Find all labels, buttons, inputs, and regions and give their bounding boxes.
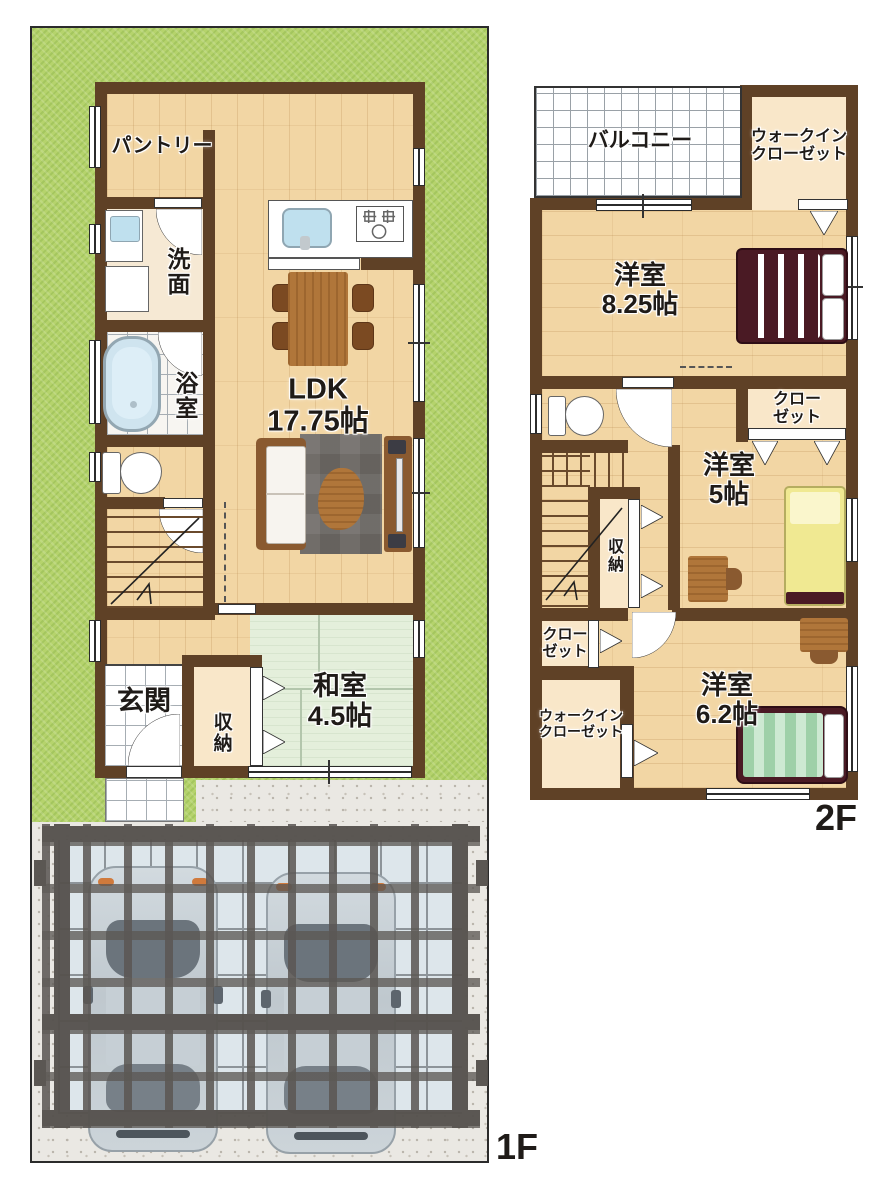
bedroom62-door-arc-icon [632,612,676,658]
washitsu-sliding-door [218,604,256,614]
closet5-shelf [748,428,846,440]
hall-door [163,498,203,508]
wall [736,389,748,442]
desk [800,618,848,652]
window [413,148,425,186]
door-arrow-icon [641,505,663,529]
bumper [116,1130,190,1138]
entrance-step-line [105,664,184,666]
kitchen-wall-stub [361,256,425,270]
bedroom5-door-arc-icon [616,389,672,447]
window [89,224,101,254]
f2-storage-door-track [628,499,640,608]
wall [530,376,858,389]
door-arrow-icon [634,740,658,766]
washroom-door [154,198,202,208]
desk-chair [810,650,838,664]
room-label-washitsu: 和室 4.5帖 [308,671,373,731]
window [413,620,425,658]
room-label-pantry: パントリー [112,135,213,157]
carport-post [476,860,488,886]
floor-plan-canvas: パントリー 洗面 浴室 LDK 17.75帖 玄関 収納 和室 4.5帖 [0,0,895,1200]
pillow [824,714,844,778]
tatami-line [300,690,302,766]
room-label-storage-f1: 収納 [210,712,231,754]
toilet-icon [102,450,162,494]
washbasin-bowl [110,216,140,242]
floor-label-2f: 2F [815,798,857,838]
door-arrow-icon [600,629,622,653]
dining-chair [352,322,374,350]
double-bed [736,248,848,344]
speaker-icon [388,440,406,454]
porch-tile [105,778,184,822]
approach-concrete [196,780,487,824]
closet62-door [588,620,599,668]
window-tick [328,760,330,784]
counter-lip [268,258,360,270]
door-arrow-icon [814,441,840,465]
single-bed-yellow [784,486,846,606]
tv-icon [396,458,403,532]
wall [95,608,215,620]
sofa-seam [266,493,304,495]
room-label-closet62: クロー ゼット [542,627,587,661]
window [89,106,101,168]
room-label-balcony: バルコニー [588,129,693,153]
speaker-icon [388,534,406,548]
sofa-cushions [266,446,306,544]
dining-table [288,272,348,366]
entrance-door-arc-icon [128,714,180,766]
door-arrow-icon [752,441,778,465]
wall [668,445,680,610]
window-tick [408,342,430,344]
pillow [822,298,844,340]
door-arrow-icon [810,211,838,235]
wall [542,666,634,680]
room-label-bedroom5: 洋室 5帖 [703,451,755,509]
wall [542,608,628,621]
wall [203,209,215,608]
bumper [294,1132,368,1140]
stairs-direction-line [107,514,203,608]
dining-chair [352,284,374,312]
window [89,452,101,482]
entrance-door [126,766,182,778]
desk-chair [726,568,742,590]
area-boundary-dashed [680,366,732,368]
window [706,788,810,800]
window-tick [642,194,644,218]
room-label-wic-bottom: ウォークイン クローゼット [539,708,623,739]
room-label-closet5: クロー ゼット [773,391,821,427]
washer-icon [105,266,149,312]
carport-frame [42,824,480,1128]
floor-label-1f: 1F [496,1127,538,1167]
room-label-bathroom: 浴室 [171,371,197,421]
wall [95,497,165,509]
carport-post [34,860,46,886]
faucet-icon [300,236,310,250]
wall [95,435,203,447]
window [89,340,101,424]
storage-door-track [250,667,263,766]
room-label-washroom: 洗面 [163,247,189,297]
window [530,394,542,434]
room-label-bedroom825: 洋室 8.25帖 [602,261,679,319]
bathtub-icon [103,336,161,432]
room-label-entrance: 玄関 [117,686,171,716]
desk [688,556,728,602]
room-label-bedroom62: 洋室 6.2帖 [696,671,758,729]
door-arrow-icon [263,676,285,700]
bathroom-door-arc-icon [158,332,202,376]
coffee-table [318,468,364,530]
window [89,620,101,662]
window [248,766,412,778]
area-boundary-dashed [224,502,226,602]
toilet-icon [548,394,604,436]
carport-post [34,1060,46,1086]
door-arrow-icon [641,574,663,598]
stove-icon [356,206,404,242]
balcony-sliding-door [596,199,692,211]
room-label-storage-f2: 収納 [604,538,622,574]
window [846,498,858,562]
bedroom825-door [622,377,674,388]
pillow [822,254,844,296]
wall [182,667,194,778]
room-label-wic-top: ウォークイン クローゼット [751,128,847,164]
door-arrow-icon [263,730,285,754]
carport-post [476,1060,488,1086]
stairs-f2-upper [552,453,626,487]
wall [95,320,203,332]
wall [182,655,262,667]
room-label-ldk: LDK 17.75帖 [267,374,369,439]
wic-top-door [798,199,848,210]
